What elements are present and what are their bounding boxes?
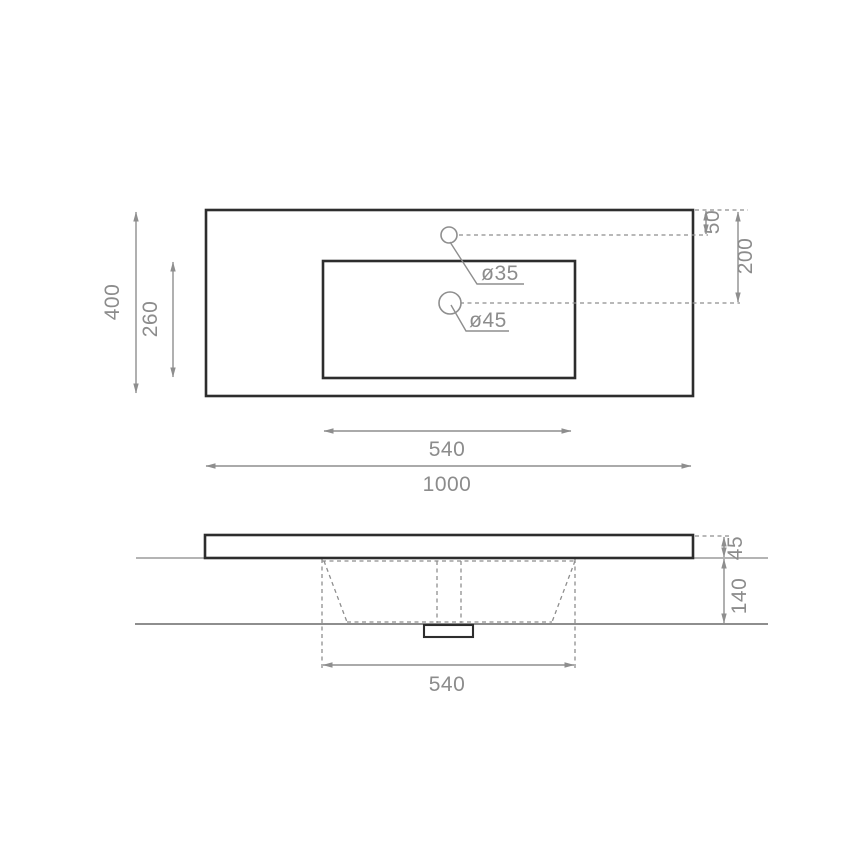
depth-dimension-label: 400: [101, 284, 124, 321]
top-view: ø35 ø45 400 260 50 200 540 1000: [101, 210, 757, 496]
basin-left-slope-line: [324, 561, 347, 622]
overall-width-dimension-label: 1000: [423, 473, 472, 496]
washbasin-technical-drawing: ø35 ø45 400 260 50 200 540 1000: [0, 0, 868, 868]
basin-depth-dimension-label: 140: [728, 578, 751, 615]
drain-hole: [439, 292, 461, 314]
drain-offset-dimension-label: 200: [734, 238, 757, 275]
drain-fitting: [424, 625, 473, 637]
thickness-dimension-label: 45: [724, 536, 747, 560]
basin-cutout-outline: [323, 261, 575, 378]
countertop-side-outline: [205, 535, 693, 558]
basin-right-slope-line: [552, 561, 575, 622]
cutout-width-dimension-label: 540: [429, 438, 466, 461]
side-view: 45 140 540: [135, 535, 768, 696]
faucet-hole: [441, 227, 457, 243]
basin-width-dimension-label: 540: [429, 673, 466, 696]
faucet-offset-dimension-label: 50: [701, 210, 724, 234]
drain-diameter-label: ø45: [469, 309, 507, 332]
cutout-depth-dimension-label: 260: [139, 301, 162, 338]
faucet-diameter-label: ø35: [481, 262, 519, 285]
drawing-canvas: ø35 ø45 400 260 50 200 540 1000: [0, 0, 868, 868]
